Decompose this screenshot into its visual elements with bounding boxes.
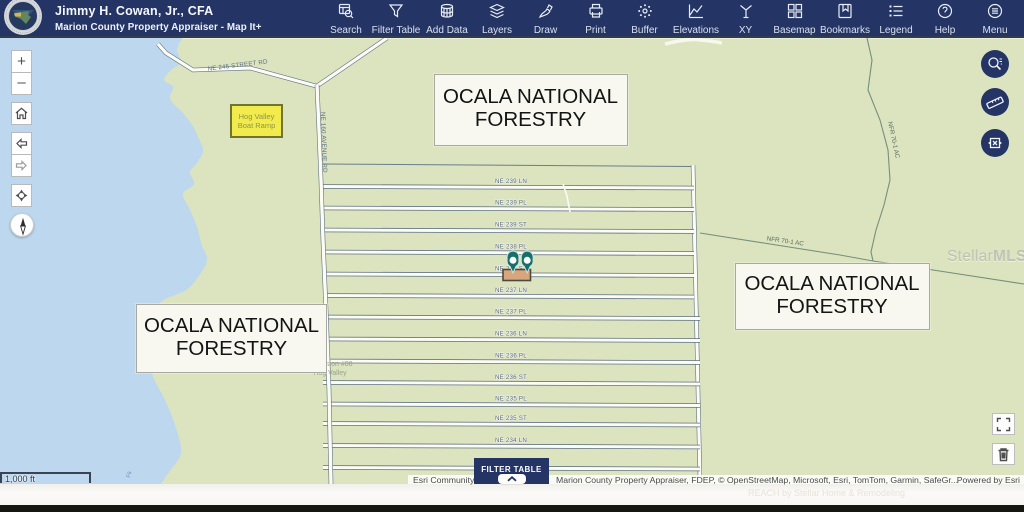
- svg-text:NE 235 PL: NE 235 PL: [495, 396, 527, 403]
- svg-text:NE 236 LN: NE 236 LN: [495, 331, 527, 338]
- svg-text:NE 239 ST: NE 239 ST: [495, 222, 527, 229]
- svg-text:NE 237 PL: NE 237 PL: [495, 309, 527, 316]
- svg-text:NE 236 ST: NE 236 ST: [495, 374, 527, 381]
- svg-text:NE 239 PL: NE 239 PL: [495, 200, 527, 207]
- svg-text:NE 239 LN: NE 239 LN: [495, 178, 527, 185]
- svg-text:NE 238 PL: NE 238 PL: [495, 244, 527, 251]
- svg-text:NE 234 LN: NE 234 LN: [495, 437, 527, 444]
- svg-text:NE 235 ST: NE 235 ST: [495, 415, 527, 422]
- svg-text:NE 237 LN: NE 237 LN: [495, 287, 527, 294]
- svg-text:NE 236 PL: NE 236 PL: [495, 353, 527, 360]
